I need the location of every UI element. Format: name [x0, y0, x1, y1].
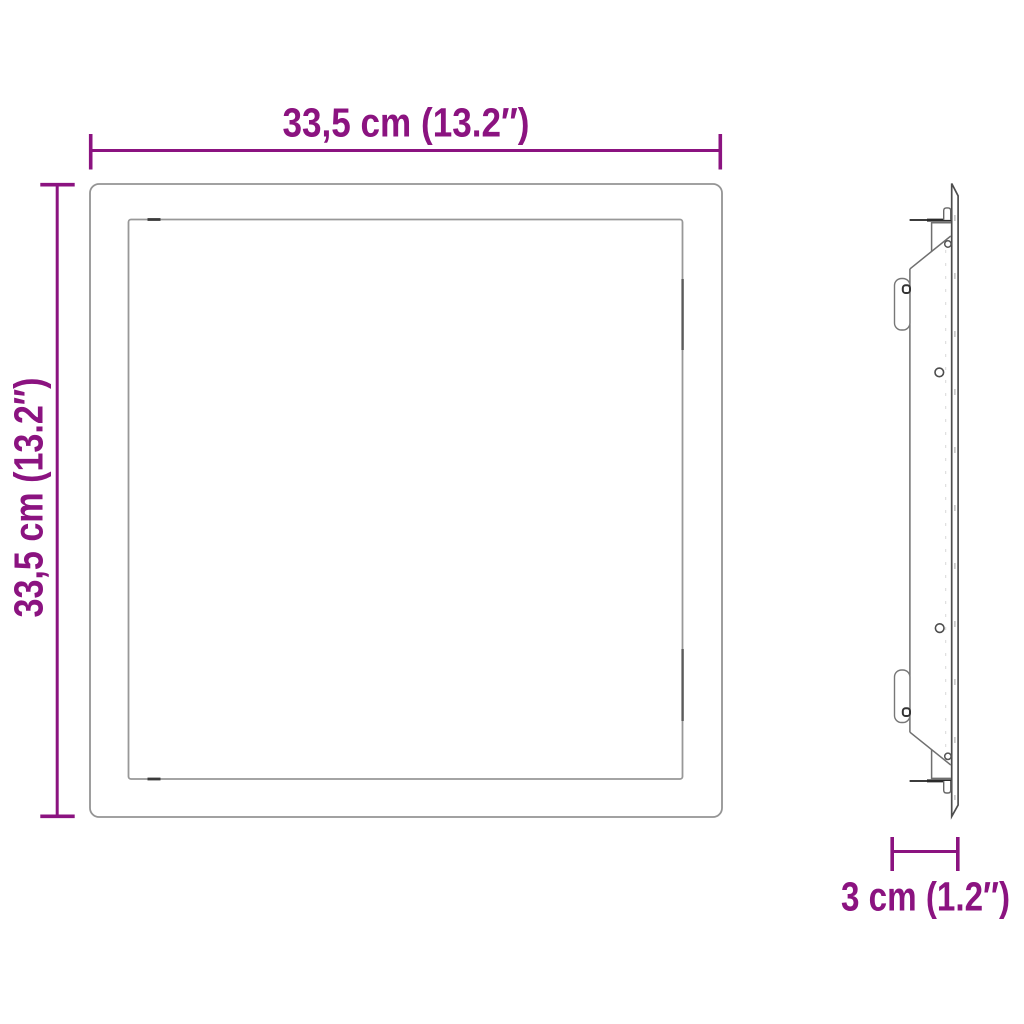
svg-text:33,5 cm (13.2″): 33,5 cm (13.2″): [6, 378, 52, 618]
svg-text:33,5 cm (13.2″): 33,5 cm (13.2″): [283, 100, 530, 146]
svg-text:3 cm (1.2″): 3 cm (1.2″): [841, 874, 1010, 920]
